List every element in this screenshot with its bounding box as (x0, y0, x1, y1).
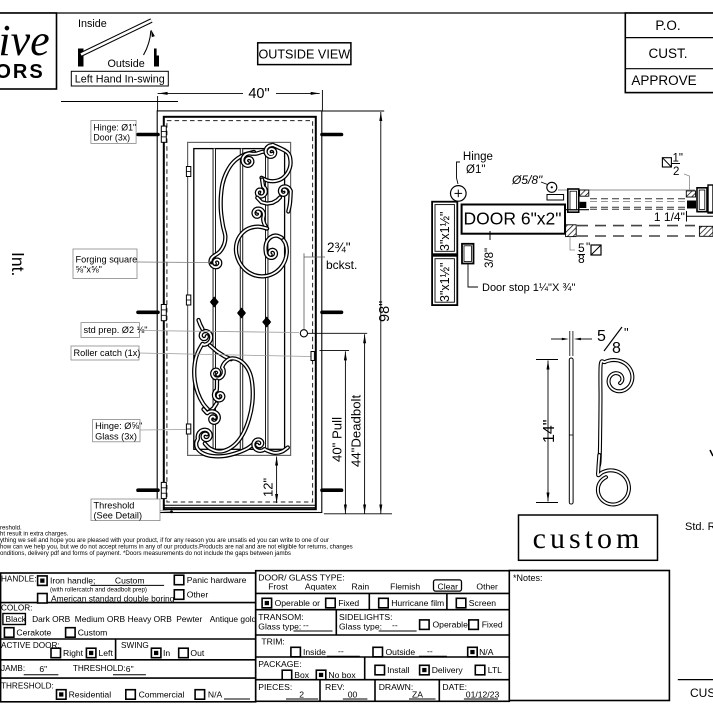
svg-text:Roller catch (1x): Roller catch (1x) (74, 348, 141, 358)
svg-text:3"x1½": 3"x1½" (438, 212, 452, 251)
svg-text:custom: custom (533, 522, 644, 555)
svg-text:ive: ive (0, 16, 50, 65)
svg-text:6": 6" (39, 664, 47, 674)
svg-text:Screen: Screen (469, 598, 496, 608)
svg-text:3/8": 3/8" (484, 248, 496, 268)
svg-text:THRESHOLD:: THRESHOLD: (1, 682, 54, 691)
svg-text:2¾": 2¾" (327, 240, 351, 255)
svg-text:DRAWN:: DRAWN: (379, 682, 414, 692)
svg-text:P.O.: P.O. (655, 18, 680, 33)
svg-text:1": 1" (673, 153, 683, 165)
svg-text:Cerakote: Cerakote (16, 628, 51, 638)
svg-text:Std. R: Std. R (685, 521, 713, 533)
svg-text:1 1/4": 1 1/4" (654, 210, 685, 224)
svg-text:3"x1½": 3"x1½" (438, 263, 452, 302)
svg-text:--: -- (392, 620, 398, 630)
svg-text:Out: Out (190, 648, 204, 658)
svg-text:Box: Box (294, 670, 310, 680)
svg-text:Operable: Operable (433, 620, 469, 630)
svg-text:Ø1": Ø1" (466, 164, 485, 176)
svg-text:8: 8 (612, 340, 621, 357)
svg-text:Aquatex: Aquatex (305, 581, 337, 591)
svg-text:Glass (3x): Glass (3x) (95, 432, 137, 442)
svg-text:Hinge: Ø1": Hinge: Ø1" (93, 122, 136, 132)
svg-text:98": 98" (377, 301, 393, 322)
svg-text:JAMB:: JAMB: (1, 664, 25, 673)
svg-text:Glass type:: Glass type: (258, 621, 301, 631)
svg-text:Forging square: Forging square (76, 254, 138, 264)
svg-text:Custom: Custom (115, 575, 145, 585)
svg-text:Commercial: Commercial (139, 689, 185, 699)
svg-text:std prep. Ø2 ⅛": std prep. Ø2 ⅛" (84, 325, 148, 335)
svg-text:Left: Left (99, 648, 114, 658)
svg-text:Delivery: Delivery (432, 665, 464, 675)
svg-text:Medium ORB: Medium ORB (75, 614, 126, 624)
svg-text:Panic hardware: Panic hardware (187, 575, 247, 585)
svg-text:SWING: SWING (121, 641, 149, 650)
svg-text:N/A: N/A (208, 689, 223, 699)
svg-text:Ø5/8": Ø5/8" (511, 173, 543, 187)
svg-text:Hinge: Ø⅝": Hinge: Ø⅝" (95, 421, 142, 431)
svg-text:CUS: CUS (690, 686, 713, 700)
svg-text:6": 6" (126, 664, 134, 674)
svg-text:APPROVE: APPROVE (631, 73, 696, 88)
svg-text:PACKAGE:: PACKAGE: (258, 659, 301, 669)
svg-text:14": 14" (541, 420, 558, 443)
svg-text:Inside: Inside (78, 18, 107, 30)
svg-text:--: -- (303, 620, 309, 630)
svg-text:COLOR:: COLOR: (1, 604, 32, 613)
svg-text:onditions, delivery pdf and fo: onditions, delivery pdf and forms of pay… (0, 550, 291, 557)
svg-text:CUST.: CUST. (648, 46, 687, 61)
svg-text:2: 2 (299, 690, 304, 700)
svg-text:Door (3x): Door (3x) (93, 132, 130, 142)
svg-text:Hurricane film: Hurricane film (391, 598, 444, 608)
svg-text:American standard double borin: American standard double boring (51, 593, 175, 603)
svg-text:ORS: ORS (0, 61, 45, 83)
svg-text:Door stop 1¼"X ¾": Door stop 1¼"X ¾" (482, 282, 576, 294)
svg-text:5: 5 (597, 328, 606, 345)
svg-text:TRIM:: TRIM: (261, 637, 284, 647)
svg-text:No box: No box (328, 670, 356, 680)
svg-text:DOOR 6"x2": DOOR 6"x2" (463, 209, 561, 229)
svg-text:01/12/23: 01/12/23 (466, 690, 500, 700)
svg-text:OUTSIDE VIEW: OUTSIDE VIEW (258, 47, 350, 61)
svg-text:": " (624, 325, 629, 340)
svg-text:bckst.: bckst. (326, 258, 357, 272)
svg-text:(See Detail): (See Detail) (94, 511, 143, 521)
svg-text:2: 2 (673, 166, 679, 178)
svg-text:*Notes:: *Notes: (513, 573, 543, 583)
svg-text:Left Hand In-swing: Left Hand In-swing (75, 74, 165, 86)
svg-text:LTL: LTL (488, 665, 502, 675)
svg-text:Iron handle;: Iron handle; (50, 575, 95, 585)
svg-text:12": 12" (261, 478, 276, 497)
svg-text:Antique gold: Antique gold (210, 614, 257, 624)
svg-text:THRESHOLD:: THRESHOLD: (73, 664, 126, 673)
svg-text:Residential: Residential (69, 689, 112, 699)
svg-text:Install: Install (387, 665, 410, 675)
svg-text:Dark ORB: Dark ORB (32, 614, 71, 624)
svg-text:Pewter: Pewter (176, 614, 202, 624)
svg-text:44"Deadbolt: 44"Deadbolt (349, 395, 364, 467)
svg-text:REV:: REV: (325, 682, 345, 692)
svg-text:--: -- (427, 646, 433, 656)
svg-text:Inside: Inside (303, 647, 326, 657)
svg-text:Fixed: Fixed (338, 598, 359, 608)
svg-text:00: 00 (348, 690, 358, 700)
svg-text:Clear: Clear (438, 581, 459, 591)
svg-text:Threshold: Threshold (94, 500, 135, 510)
svg-text:ZA: ZA (412, 690, 423, 700)
svg-text:N/A: N/A (479, 647, 494, 657)
svg-text:Other: Other (187, 590, 209, 600)
svg-text:Hinge: Hinge (463, 151, 493, 163)
svg-text:40": 40" (248, 86, 269, 102)
svg-text:40" Pull: 40" Pull (329, 417, 344, 462)
svg-text:Black: Black (6, 614, 27, 624)
svg-text:Outside: Outside (386, 647, 416, 657)
svg-text:HANDLE:: HANDLE: (1, 575, 37, 584)
svg-text:⅝"x⅝": ⅝"x⅝" (76, 265, 102, 275)
svg-text:Heavy ORB: Heavy ORB (128, 614, 173, 624)
svg-text:": " (586, 240, 590, 254)
svg-text:Rain: Rain (352, 581, 370, 591)
svg-text:Frost: Frost (268, 581, 288, 591)
svg-text:In: In (163, 648, 170, 658)
svg-text:Glass type:: Glass type: (339, 621, 382, 631)
svg-text:Fixed: Fixed (482, 620, 503, 630)
svg-text:Outside: Outside (108, 58, 145, 70)
svg-text:--: -- (338, 646, 344, 656)
svg-text:Flemish: Flemish (390, 581, 420, 591)
svg-text:Operable or: Operable or (275, 598, 321, 608)
svg-text:DATE:: DATE: (442, 682, 467, 692)
svg-text:Custom: Custom (78, 628, 108, 638)
svg-text:PIECES:: PIECES: (258, 682, 292, 692)
svg-text:Int.: Int. (8, 252, 28, 276)
svg-text:Other: Other (476, 581, 498, 591)
svg-text:Right: Right (63, 648, 84, 658)
